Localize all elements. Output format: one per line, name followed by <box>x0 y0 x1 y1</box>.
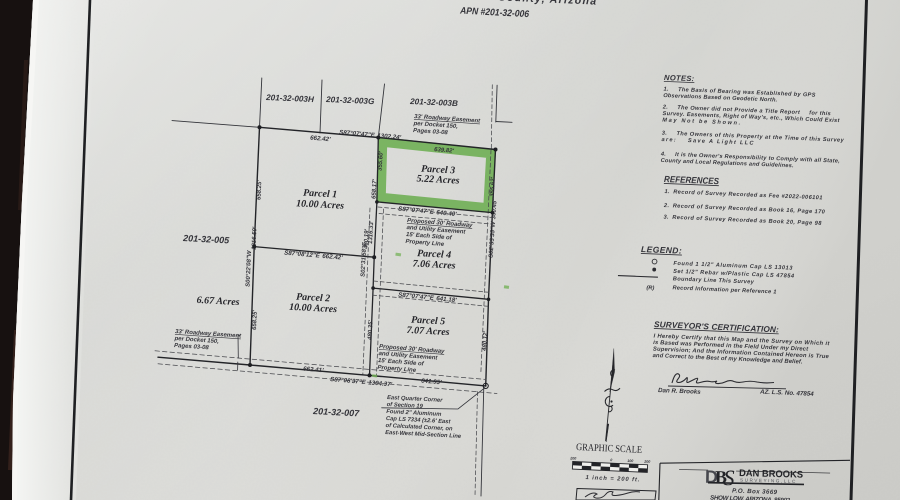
svg-text:7.06 Acres: 7.06 Acres <box>412 258 456 271</box>
svg-text:7.07 Acres: 7.07 Acres <box>406 325 450 338</box>
svg-text:6.67 Acres: 6.67 Acres <box>196 295 240 308</box>
svg-text:658.25': 658.25' <box>257 179 264 200</box>
svg-text:S: S <box>723 465 734 490</box>
svg-text:LEGEND:: LEGEND: <box>641 244 682 256</box>
svg-text:200: 200 <box>643 460 650 464</box>
svg-text:5.22 Acres: 5.22 Acres <box>416 173 460 186</box>
svg-text:100: 100 <box>627 459 633 463</box>
svg-text:0: 0 <box>610 458 612 462</box>
svg-text:200: 200 <box>569 456 576 460</box>
svg-text:658.17': 658.17' <box>372 178 379 199</box>
svg-text:480.35': 480.35' <box>367 319 374 341</box>
svg-text:(R): (R) <box>646 285 654 291</box>
svg-text:NOTES:: NOTES: <box>664 73 695 83</box>
svg-text:658.25': 658.25' <box>252 309 259 330</box>
